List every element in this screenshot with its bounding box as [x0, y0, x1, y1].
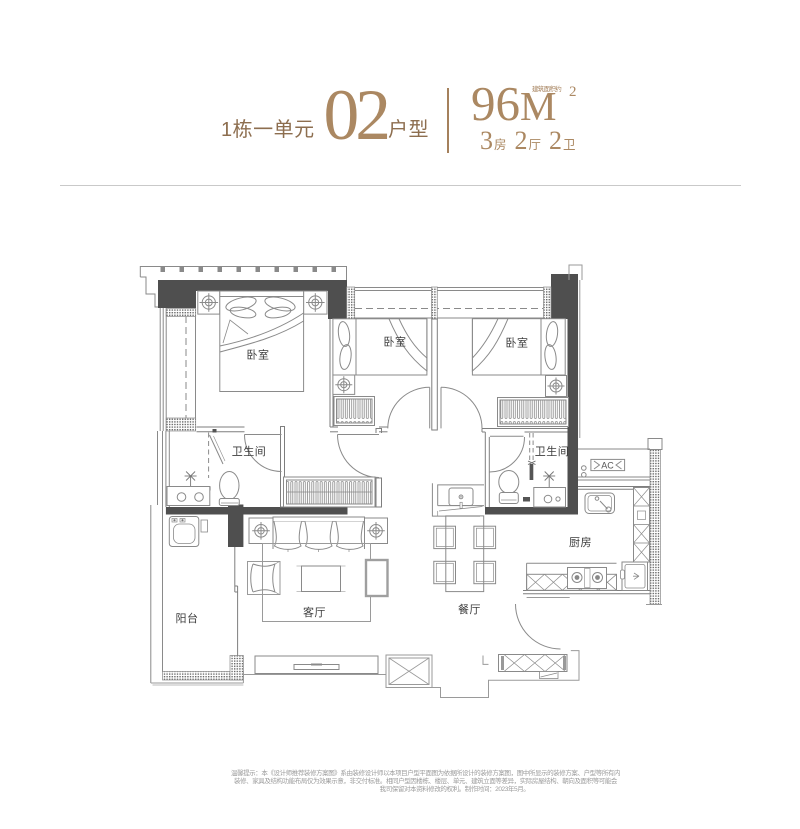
svg-text:客厅: 客厅 [303, 605, 326, 619]
svg-text:卫生间: 卫生间 [535, 444, 570, 458]
svg-text:卫生间: 卫生间 [232, 444, 267, 458]
svg-text:阳台: 阳台 [176, 611, 199, 625]
svg-text:厨房: 厨房 [569, 536, 592, 549]
svg-text:卧室: 卧室 [384, 335, 407, 349]
svg-text:卧室: 卧室 [247, 348, 270, 362]
svg-text:餐厅: 餐厅 [458, 602, 481, 616]
svg-text:卧室: 卧室 [506, 336, 529, 350]
svg-text:AC: AC [601, 461, 614, 471]
